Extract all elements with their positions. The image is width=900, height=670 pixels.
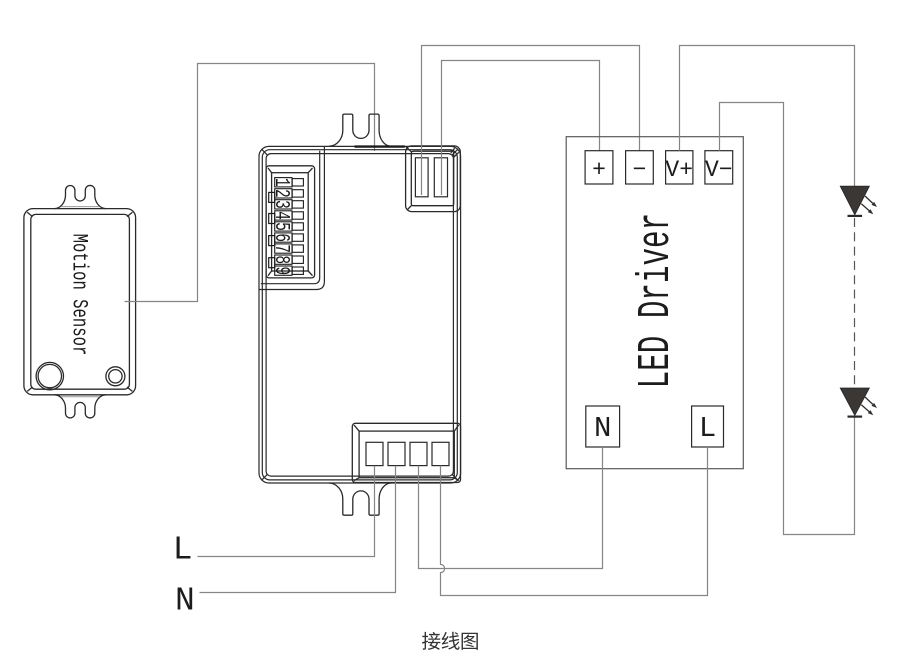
svg-text:4: 4: [269, 211, 294, 220]
svg-text:V+: V+: [665, 157, 693, 183]
svg-text:7: 7: [269, 244, 294, 253]
svg-text:L: L: [173, 532, 193, 569]
svg-text:9: 9: [269, 266, 294, 275]
svg-text:V−: V−: [705, 157, 733, 183]
svg-text:L: L: [699, 412, 716, 445]
svg-text:Motion Sensor: Motion Sensor: [67, 234, 92, 356]
svg-text:2: 2: [269, 189, 294, 198]
svg-text:3: 3: [269, 200, 294, 209]
svg-text:N: N: [594, 412, 611, 445]
svg-text:1: 1: [269, 178, 294, 187]
svg-text:+: +: [592, 157, 606, 183]
svg-text:5: 5: [269, 222, 294, 231]
svg-text:8: 8: [269, 255, 294, 264]
svg-text:LED Driver: LED Driver: [631, 213, 682, 388]
svg-text:6: 6: [269, 233, 294, 242]
svg-text:N: N: [175, 583, 195, 620]
svg-text:−: −: [632, 157, 646, 183]
